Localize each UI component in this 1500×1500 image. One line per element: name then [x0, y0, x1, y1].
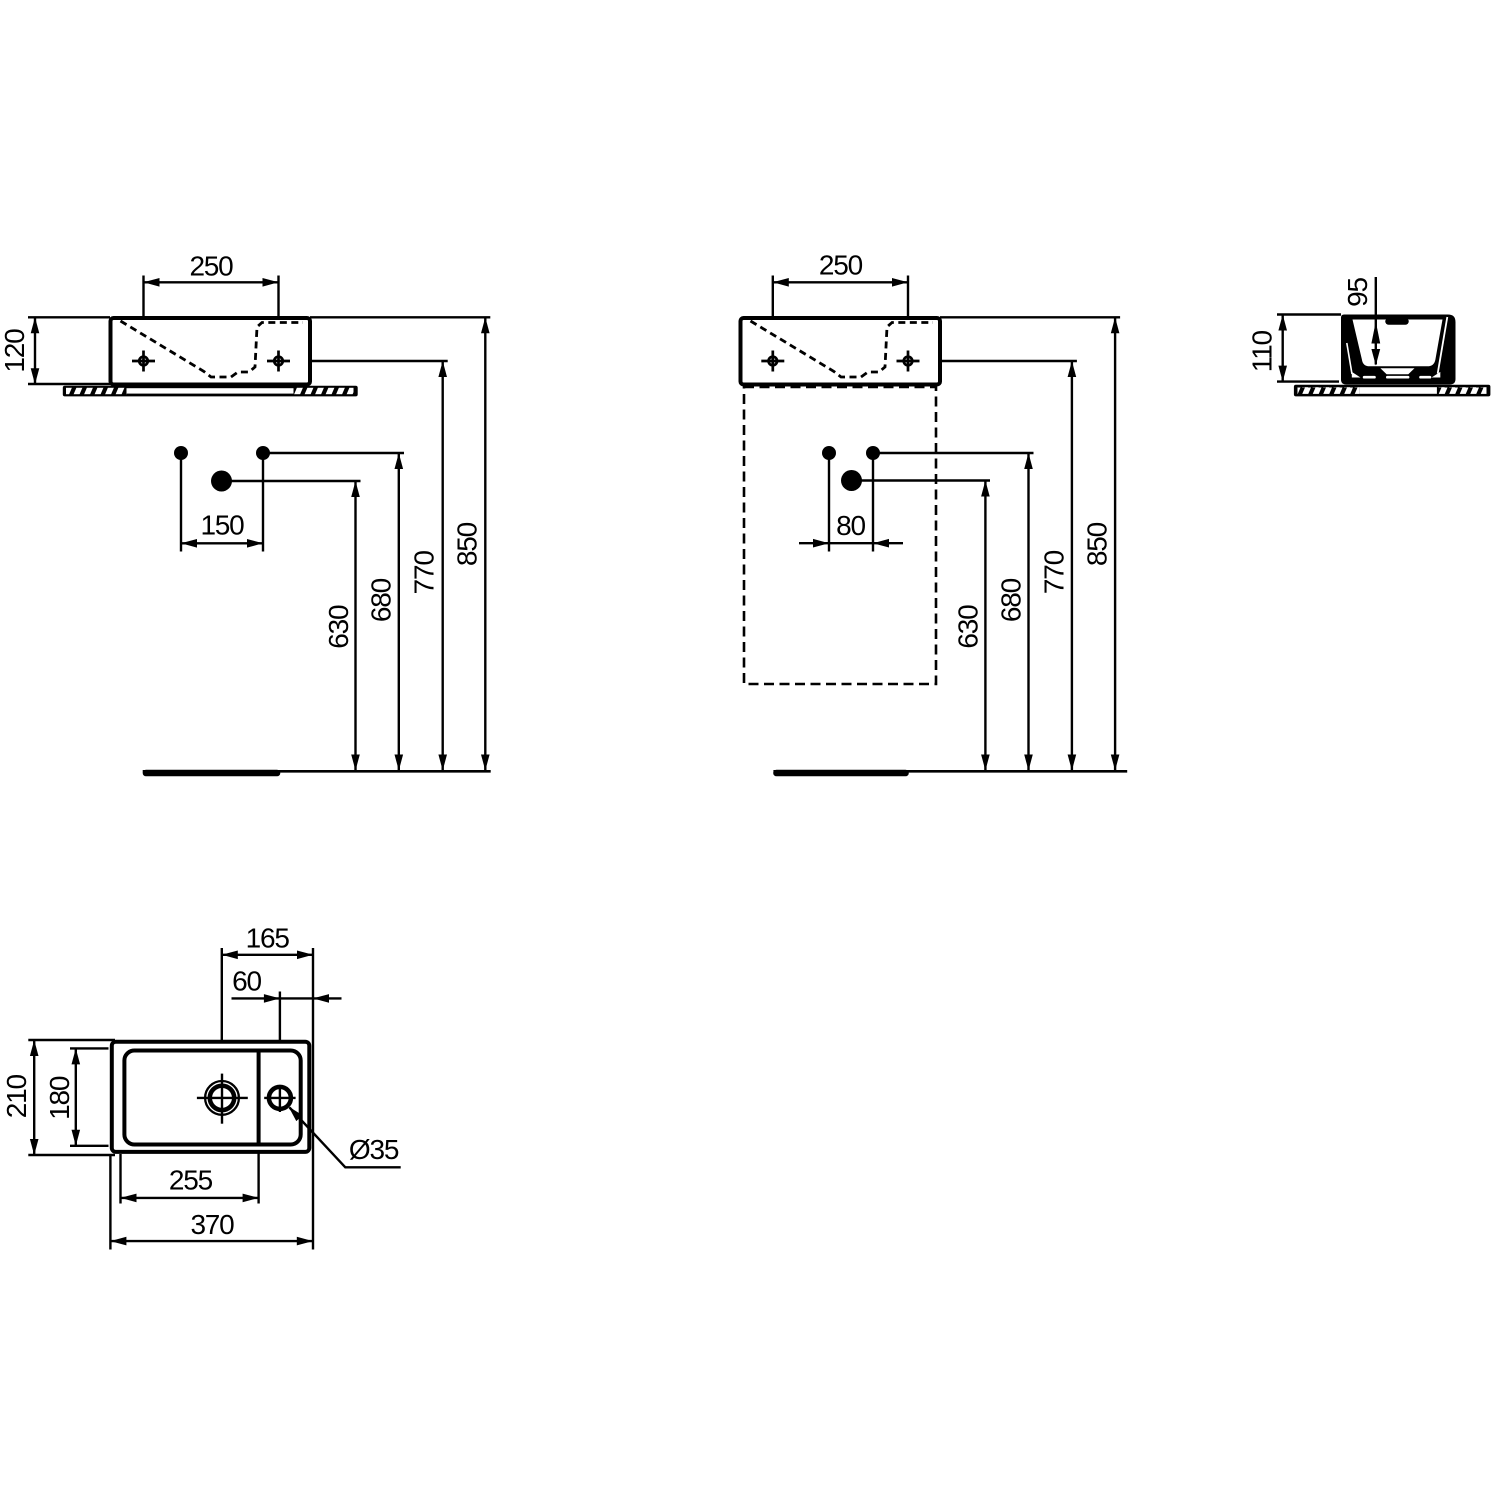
svg-text:770: 770: [1038, 550, 1069, 594]
svg-text:370: 370: [190, 1209, 234, 1240]
svg-text:95: 95: [1342, 278, 1373, 307]
svg-text:120: 120: [0, 329, 30, 373]
svg-text:850: 850: [451, 522, 482, 566]
svg-text:250: 250: [819, 250, 863, 281]
svg-text:150: 150: [200, 509, 244, 540]
svg-text:210: 210: [1, 1075, 32, 1119]
svg-text:250: 250: [189, 250, 233, 281]
svg-text:255: 255: [169, 1164, 213, 1195]
svg-text:770: 770: [409, 551, 440, 595]
svg-text:680: 680: [366, 578, 397, 622]
svg-text:630: 630: [323, 605, 354, 649]
svg-text:110: 110: [1247, 331, 1278, 373]
svg-text:850: 850: [1082, 522, 1113, 566]
svg-text:630: 630: [953, 605, 984, 649]
svg-text:680: 680: [996, 578, 1027, 622]
svg-text:Ø35: Ø35: [349, 1134, 399, 1165]
svg-text:60: 60: [232, 966, 261, 997]
svg-text:180: 180: [44, 1076, 75, 1120]
svg-text:80: 80: [836, 510, 865, 541]
svg-text:165: 165: [246, 923, 290, 954]
